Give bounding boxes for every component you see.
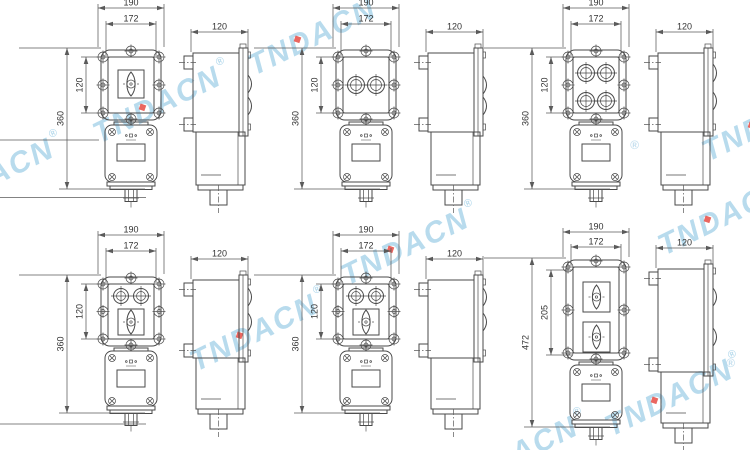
side-view — [414, 271, 487, 437]
cover-screw — [382, 355, 389, 362]
flange-bolt — [590, 353, 603, 366]
vertical-dimension: 205 — [540, 270, 554, 355]
dim-label: 120 — [447, 22, 462, 32]
drawing-3: 190172120360120 — [484, 0, 717, 213]
flange-bolt — [590, 113, 603, 126]
dim-label: 120 — [212, 22, 227, 32]
horizontal-dimension: 172 — [341, 241, 391, 254]
cover-screw — [612, 369, 619, 376]
drawing-2: 190172120360120 — [254, 0, 487, 213]
horizontal-dimension: 190 — [98, 0, 164, 10]
dim-label: 360 — [291, 111, 301, 126]
dim-label: 360 — [56, 336, 66, 351]
cable-gland — [358, 190, 374, 210]
cover-screw — [612, 129, 619, 136]
push-button-glyph — [365, 74, 387, 96]
horizontal-dimension: 120 — [426, 249, 483, 262]
horizontal-dimension: 190 — [563, 0, 629, 10]
horizontal-dimension: 172 — [571, 237, 621, 250]
vertical-dimension: 360 — [56, 48, 70, 189]
cover-screw — [382, 129, 389, 136]
drawing-1: 190172120360120 — [0, 0, 252, 213]
dim-label: 120 — [447, 249, 462, 259]
cover-screw — [574, 129, 581, 136]
horizontal-dimension: 120 — [656, 238, 713, 251]
horizontal-dimension: 120 — [426, 22, 483, 35]
dim-label: 120 — [212, 249, 227, 259]
cable-gland — [588, 428, 604, 448]
dim-label: 190 — [588, 222, 603, 232]
vertical-dimension: 120 — [310, 284, 324, 339]
cable-gland — [588, 190, 604, 210]
cover-screw — [109, 355, 116, 362]
control-profile-bump — [248, 288, 252, 306]
push-button-glyph — [346, 286, 366, 306]
dim-label: 360 — [521, 111, 531, 126]
dim-label: 205 — [540, 305, 550, 320]
horizontal-dimension: 190 — [333, 0, 399, 10]
side-view — [179, 271, 252, 437]
dim-label: 190 — [123, 225, 138, 235]
nameplate-logo — [360, 134, 371, 140]
horizontal-dimension: 190 — [98, 225, 164, 238]
dim-label: 360 — [56, 111, 66, 126]
cover-screw — [382, 398, 389, 405]
dim-label: 190 — [358, 0, 373, 8]
control-profile-bump — [713, 92, 717, 110]
nameplate-logo — [590, 134, 601, 140]
dim-label: 120 — [310, 304, 320, 319]
dim-label: 172 — [123, 14, 138, 24]
side-view — [644, 44, 717, 213]
front-view — [562, 255, 631, 448]
cover-screw — [344, 398, 351, 405]
flange-bolt — [125, 113, 138, 126]
drawing-6: 190172205472120 — [484, 222, 717, 450]
cover-screw — [147, 129, 154, 136]
cable-gland — [358, 414, 374, 434]
dim-label: 190 — [588, 0, 603, 8]
flange-bolt — [360, 272, 373, 285]
control-profile-bump — [248, 313, 252, 331]
selector-switch-glyph — [358, 310, 374, 334]
catalog-drawing-sheet: TNDACN®TNDACN®TNDACN®TNDACN®TNDACN®TNDAC… — [0, 0, 750, 450]
dim-label: 172 — [358, 241, 373, 251]
dim-label: 120 — [677, 22, 692, 32]
selector-switch-glyph — [589, 285, 605, 309]
vertical-dimension: 360 — [291, 275, 305, 413]
push-button-glyph — [345, 74, 367, 96]
cover-screw — [109, 129, 116, 136]
horizontal-dimension: 120 — [191, 22, 248, 35]
push-button-glyph — [131, 286, 151, 306]
front-view — [97, 272, 166, 434]
dim-label: 172 — [588, 237, 603, 247]
vertical-dimension: 120 — [75, 284, 89, 339]
push-button-glyph — [111, 286, 131, 306]
selector-switch-glyph — [589, 325, 605, 349]
dimensions: 190172205472120 — [484, 222, 713, 428]
vertical-dimension: 472 — [521, 258, 535, 427]
push-button-glyph — [595, 90, 617, 112]
control-profile-bump — [483, 288, 487, 306]
front-view — [562, 45, 631, 210]
push-button-glyph — [575, 62, 597, 84]
flange-bolt — [590, 45, 603, 58]
horizontal-dimension: 190 — [333, 225, 399, 238]
drawing-4: 190172120360120 — [0, 225, 252, 438]
vertical-dimension: 120 — [75, 57, 89, 113]
selector-switch-glyph — [123, 72, 139, 96]
push-button-glyph — [595, 62, 617, 84]
horizontal-dimension: 172 — [106, 241, 156, 254]
control-profile-bump — [483, 313, 487, 331]
dimensions: 190172120360120 — [0, 225, 248, 425]
flange-bolt — [125, 45, 138, 58]
horizontal-dimension: 172 — [571, 14, 621, 27]
front-view — [332, 45, 401, 210]
cover-screw — [382, 174, 389, 181]
side-view — [414, 44, 487, 213]
dim-label: 172 — [358, 14, 373, 24]
push-button-glyph — [366, 286, 386, 306]
dim-label: 190 — [123, 0, 138, 8]
flange-bolt — [125, 339, 138, 352]
cover-screw — [147, 355, 154, 362]
side-view — [179, 44, 252, 213]
selector-switch-glyph — [123, 310, 139, 334]
cover-screw — [109, 174, 116, 181]
flange-bolt — [590, 255, 603, 268]
cover-screw — [574, 369, 581, 376]
cover-screw — [344, 355, 351, 362]
cover-screw — [147, 398, 154, 405]
control-profile-bump — [483, 76, 487, 94]
cover-screw — [574, 174, 581, 181]
horizontal-dimension: 190 — [563, 222, 629, 235]
horizontal-dimension: 120 — [191, 249, 248, 262]
dim-label: 360 — [291, 336, 301, 351]
horizontal-dimension: 172 — [106, 14, 156, 27]
push-button-glyph — [575, 90, 597, 112]
dim-label: 120 — [540, 77, 550, 92]
nameplate-logo — [360, 360, 371, 366]
cable-gland — [123, 190, 139, 210]
flange-bolt — [360, 339, 373, 352]
cover-screw — [147, 174, 154, 181]
dim-label: 472 — [521, 335, 531, 350]
dim-label: 120 — [75, 304, 85, 319]
front-view — [332, 272, 401, 434]
vertical-dimension: 360 — [291, 48, 305, 189]
cover-screw — [344, 129, 351, 136]
dim-label: 120 — [75, 77, 85, 92]
horizontal-dimension: 120 — [656, 22, 713, 35]
cable-gland — [123, 414, 139, 434]
cover-screw — [109, 398, 116, 405]
dim-label: 190 — [358, 225, 373, 235]
cover-screw — [344, 174, 351, 181]
dim-label: 120 — [677, 238, 692, 248]
dim-label: 120 — [310, 77, 320, 92]
vertical-dimension: 360 — [56, 275, 70, 413]
flange-bolt — [360, 113, 373, 126]
vertical-dimension: 360 — [521, 48, 535, 189]
cover-screw — [612, 174, 619, 181]
horizontal-dimension: 172 — [341, 14, 391, 27]
flange-bolt — [125, 272, 138, 285]
side-view — [644, 260, 717, 450]
cover-screw — [574, 412, 581, 419]
control-profile-bump — [248, 97, 252, 115]
front-view — [97, 45, 166, 210]
flange-bolt — [360, 45, 373, 58]
control-profile-bump — [713, 64, 717, 82]
control-profile-bump — [713, 328, 717, 346]
technical-drawing-canvas: 1901721203601201901721203601201901721203… — [0, 0, 750, 450]
vertical-dimension: 120 — [310, 57, 324, 113]
control-profile-bump — [248, 75, 252, 93]
dim-label: 172 — [123, 241, 138, 251]
nameplate-logo — [590, 374, 601, 380]
nameplate-logo — [125, 134, 136, 140]
nameplate-logo — [125, 360, 136, 366]
drawing-5: 190172120360120 — [254, 225, 487, 438]
vertical-dimension: 120 — [540, 57, 554, 113]
dimensions: 190172120360120 — [0, 0, 248, 198]
cover-screw — [612, 412, 619, 419]
dim-label: 172 — [588, 14, 603, 24]
control-profile-bump — [483, 97, 487, 115]
control-profile-bump — [713, 288, 717, 306]
